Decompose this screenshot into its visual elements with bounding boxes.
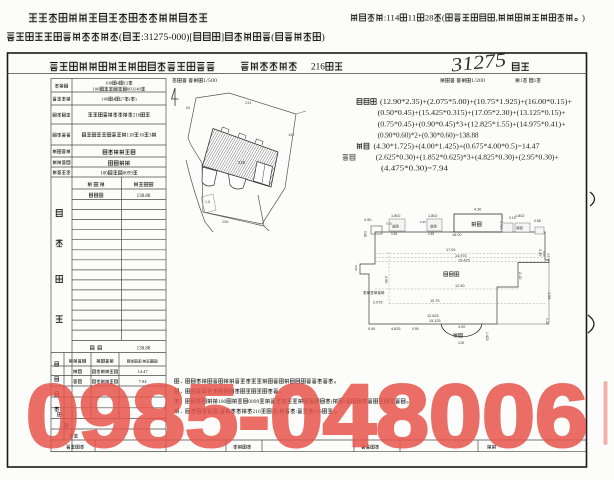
svg-text:0.975: 0.975 <box>547 253 551 261</box>
svg-text:165: 165 <box>288 133 294 137</box>
svg-text:1/200: 1/200 <box>471 79 486 84</box>
svg-text:216: 216 <box>238 160 246 165</box>
svg-text:138.88: 138.88 <box>137 194 151 199</box>
svg-text:(: ( <box>271 32 274 43</box>
svg-text:0.88: 0.88 <box>534 219 541 223</box>
svg-text:2.90: 2.90 <box>384 276 388 283</box>
svg-text:15.425: 15.425 <box>458 259 470 263</box>
svg-text:0.45: 0.45 <box>391 232 397 236</box>
svg-text:3: 3 <box>149 134 152 139</box>
svg-text:2.10: 2.10 <box>518 272 522 279</box>
svg-text:): ) <box>322 32 325 43</box>
svg-text:0.30: 0.30 <box>420 220 426 224</box>
svg-text:12.90: 12.90 <box>455 284 465 288</box>
svg-text:208: 208 <box>222 220 228 224</box>
svg-text:28: 28 <box>425 13 434 23</box>
svg-text:0.30: 0.30 <box>545 318 549 325</box>
svg-text:(0.90*0.60)*2+(0.30*0.60)=138.: (0.90*0.60)*2+(0.30*0.60)=138.88 <box>378 131 479 139</box>
svg-text:1.802: 1.802 <box>515 214 525 218</box>
svg-text:1.802: 1.802 <box>391 214 401 218</box>
svg-text:0.90: 0.90 <box>368 327 375 331</box>
svg-text:1: 1 <box>534 79 537 84</box>
svg-text:1.425: 1.425 <box>485 332 489 341</box>
svg-text:): ) <box>157 360 159 364</box>
svg-text:1.725: 1.725 <box>499 221 503 230</box>
svg-text:0.45: 0.45 <box>428 232 434 236</box>
svg-text:2.075: 2.075 <box>373 301 383 305</box>
svg-text:4.00: 4.00 <box>458 325 465 329</box>
svg-text:1.802: 1.802 <box>428 214 438 218</box>
svg-text:4.30: 4.30 <box>474 208 481 212</box>
svg-text:0.90: 0.90 <box>364 218 371 222</box>
svg-text:0.90: 0.90 <box>412 327 419 331</box>
svg-text:(2.625*0.30)+(1.852*0.625)*3+(: (2.625*0.30)+(1.852*0.625)*3+(4.825*0.30… <box>376 154 559 162</box>
svg-text:15.125: 15.125 <box>429 319 441 323</box>
svg-text:1: 1 <box>520 79 523 84</box>
svg-text:(: ( <box>119 32 122 43</box>
svg-text:]: ] <box>221 32 224 43</box>
svg-text:2.30: 2.30 <box>538 249 542 256</box>
svg-text:216: 216 <box>311 62 325 72</box>
svg-text:12: 12 <box>124 81 129 86</box>
svg-text:100: 100 <box>100 172 108 177</box>
svg-text:0.15: 0.15 <box>386 222 392 226</box>
svg-text:,: , <box>496 13 498 23</box>
svg-text:4.30: 4.30 <box>458 341 464 345</box>
svg-text:12.625: 12.625 <box>427 314 439 318</box>
svg-text:): ) <box>582 13 585 23</box>
svg-text:14.975: 14.975 <box>455 254 467 258</box>
svg-text:(0.75*0.45)+(0.90*0.45)*3+(12.: (0.75*0.45)+(0.90*0.45)*3+(12.825*1.55)+… <box>378 120 566 128</box>
svg-text:0.60: 0.60 <box>363 231 367 237</box>
svg-text:31275: 31275 <box>449 50 507 77</box>
svg-text:11: 11 <box>408 13 417 23</box>
svg-text:003140: 003140 <box>127 87 142 92</box>
svg-text:17.00: 17.00 <box>446 248 456 252</box>
svg-text:(0.50*0.45)+(15.425*0.315)+(17: (0.50*0.45)+(15.425*0.315)+(17.05*2.30)+… <box>378 109 566 117</box>
svg-text:(4.30*1.725)+(4.00*1.425)+(0.6: (4.30*1.725)+(4.00*1.425)+(0.675*4.00*0.… <box>374 143 541 151</box>
svg-text:0099: 0099 <box>123 172 134 177</box>
svg-text:10.75: 10.75 <box>430 299 440 303</box>
svg-text:1/500: 1/500 <box>203 79 218 84</box>
svg-text:1-8: 1-8 <box>205 200 210 204</box>
svg-text:(: ( <box>129 97 131 102</box>
svg-text:4.825: 4.825 <box>391 327 401 331</box>
svg-text:100: 100 <box>93 87 101 92</box>
svg-text:84: 84 <box>186 106 190 110</box>
svg-text:16: 16 <box>139 134 145 139</box>
svg-text:118: 118 <box>127 134 135 139</box>
svg-text::114: :114 <box>384 13 400 23</box>
svg-text:(12.90*2.35)+(2.075*5.00)+(10.: (12.90*2.35)+(2.075*5.00)+(10.75*1.925)+… <box>380 98 572 106</box>
svg-text:100: 100 <box>105 81 113 86</box>
svg-text:0.50: 0.50 <box>354 265 358 271</box>
svg-text:234: 234 <box>245 101 251 105</box>
svg-text::31275-000)[: :31275-000)[ <box>141 32 193 43</box>
svg-text:16.00: 16.00 <box>452 233 462 237</box>
svg-text:1.55: 1.55 <box>547 292 551 299</box>
svg-text:27: 27 <box>120 97 125 102</box>
svg-text:): ) <box>135 97 137 102</box>
svg-text:216: 216 <box>133 114 141 119</box>
svg-text:(4.475*0.30)=7.94: (4.475*0.30)=7.94 <box>381 165 449 173</box>
svg-text:138.88: 138.88 <box>137 347 151 352</box>
svg-text:(: ( <box>442 13 445 23</box>
svg-text:0985-048006: 0985-048006 <box>26 366 588 465</box>
svg-text:100: 100 <box>101 97 109 102</box>
svg-text:4: 4 <box>117 81 120 86</box>
